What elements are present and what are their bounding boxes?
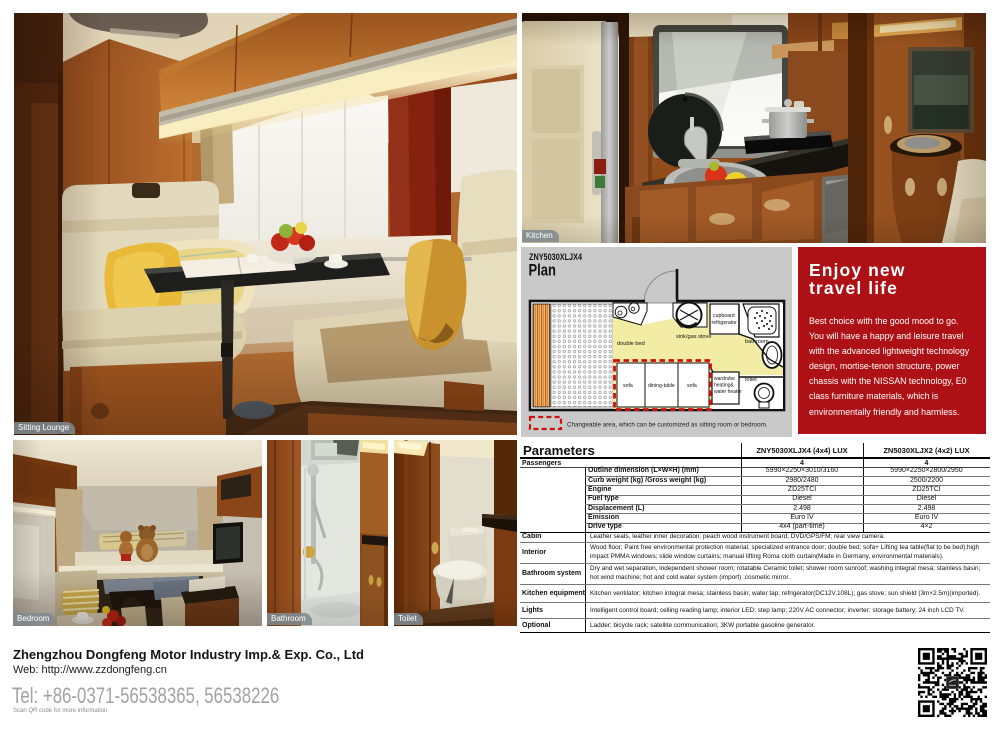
svg-text:sink/gas stove: sink/gas stove [676, 334, 711, 340]
svg-text:ZNY5030XLJX4: ZNY5030XLJX4 [529, 252, 582, 262]
svg-text:sofa: sofa [687, 383, 697, 389]
svg-text:double bed: double bed [617, 341, 645, 347]
svg-text:cupboard: cupboard [713, 313, 735, 319]
svg-text:dining-table: dining-table [648, 383, 675, 389]
svg-text:toilet: toilet [745, 377, 757, 383]
svg-text:water heater: water heater [714, 389, 742, 395]
svg-text:Plan: Plan [529, 262, 557, 280]
svg-text:Changeable area, which can be: Changeable area, which can be customized… [567, 422, 768, 429]
svg-text:wardrobe: wardrobe [714, 376, 735, 382]
svg-text:heating&: heating& [714, 383, 734, 389]
svg-text:sofa: sofa [623, 383, 633, 389]
svg-text:refrigerator: refrigerator [712, 320, 738, 326]
